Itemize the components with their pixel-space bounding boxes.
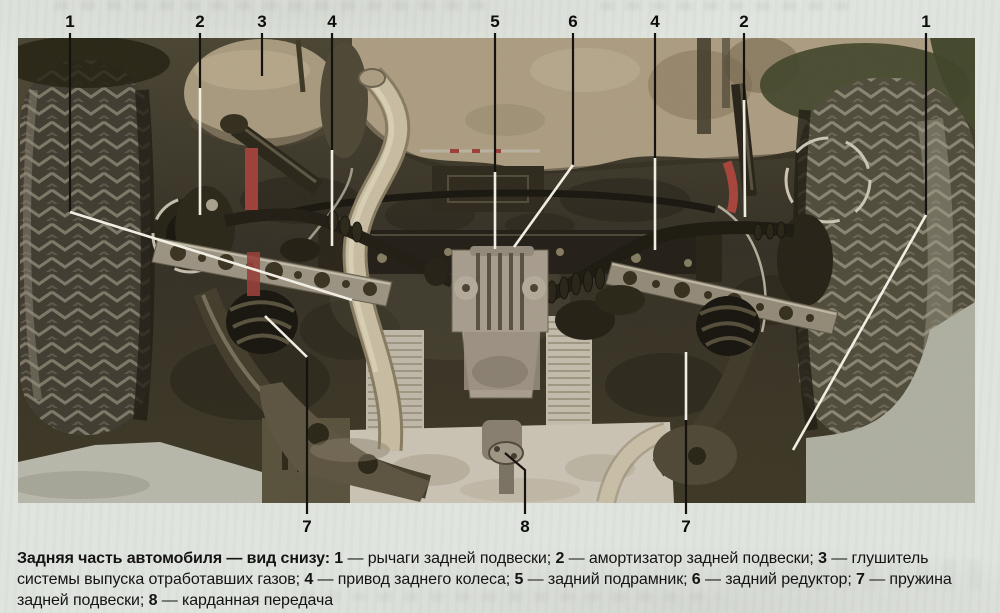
legend-text: — карданная передача: [157, 592, 333, 609]
callout-number-7-bottom: 7: [681, 517, 690, 536]
callout-number-5-top: 5: [490, 12, 499, 31]
legend-number: 6: [692, 571, 701, 588]
legend-text: — привод заднего колеса;: [313, 571, 514, 588]
photo-scene: [0, 36, 975, 503]
legend-text: — рычаги задней подвески;: [343, 550, 555, 567]
caption-intro: Задняя часть автомобиля — вид снизу:: [17, 550, 330, 567]
callout-number-6-top: 6: [568, 12, 577, 31]
callout-number-2-top: 2: [739, 12, 748, 31]
callout-number-8-bottom: 8: [520, 517, 529, 536]
legend-number: 3: [818, 550, 827, 567]
legend-number: 1: [334, 550, 343, 567]
callout-number-7-bottom: 7: [302, 517, 311, 536]
callout-number-1-top: 1: [65, 12, 74, 31]
sepia-tint: [18, 38, 975, 503]
callout-number-1-top: 1: [921, 12, 930, 31]
callout-number-4-top: 4: [327, 12, 337, 31]
legend-number: 2: [555, 550, 564, 567]
legend-number: 7: [856, 571, 865, 588]
legend-number: 4: [304, 571, 313, 588]
callout-leader-2: [744, 100, 745, 217]
legend-text: — задний редуктор;: [701, 571, 856, 588]
callout-number-3-top: 3: [257, 12, 266, 31]
manual-page: 123456421787 Задняя часть автомобиля — в…: [0, 0, 1000, 613]
legend-text: — задний подрамник;: [523, 571, 692, 588]
legend-text: — амортизатор задней подвески;: [564, 550, 818, 567]
callout-number-4-top: 4: [650, 12, 660, 31]
callout-number-2-top: 2: [195, 12, 204, 31]
figure-caption: Задняя часть автомобиля — вид снизу: 1 —…: [17, 548, 975, 611]
legend-number: 5: [514, 571, 523, 588]
underbody-photo-figure: 123456421787: [0, 0, 1000, 613]
